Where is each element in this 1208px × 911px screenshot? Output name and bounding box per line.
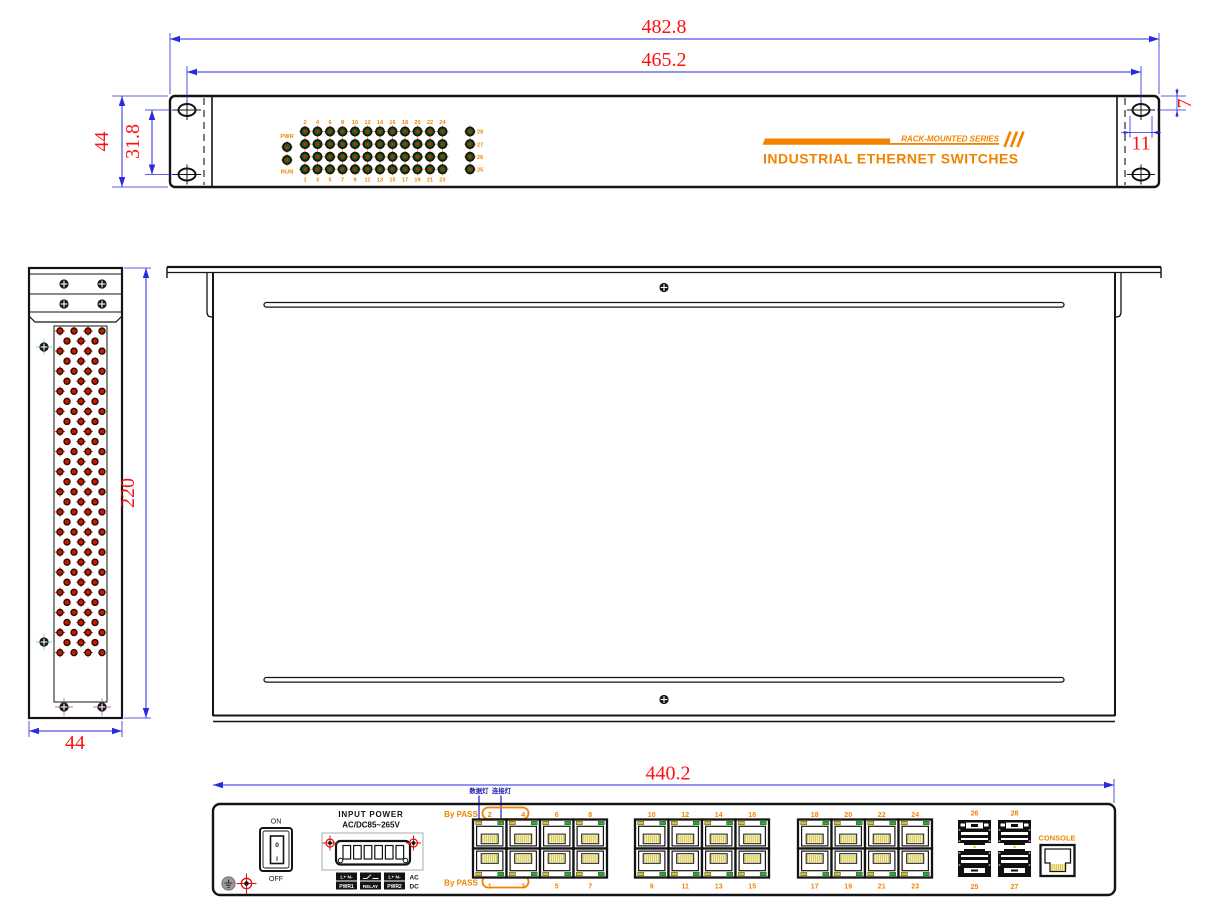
link-led-callout: 连接灯 — [492, 786, 512, 795]
vent-hole — [71, 569, 77, 575]
port-led-yellow — [801, 872, 807, 875]
input-power-label: INPUT POWER — [338, 810, 403, 819]
led-column-number: 6 — [328, 120, 331, 126]
led-column-number: 11 — [365, 178, 371, 184]
cover-screw — [659, 695, 668, 704]
port-led-yellow — [868, 872, 874, 875]
vent-hole — [64, 519, 70, 525]
front-led-panel: PWR RUN 21436587109121114131615181720192… — [280, 120, 483, 184]
input-voltage-label: AC/DC85~265V — [342, 821, 400, 830]
brand-slashes-icon — [1005, 132, 1024, 148]
port-led-yellow — [638, 872, 644, 875]
led-column-number: 7 — [341, 178, 344, 184]
sfp-port[interactable] — [998, 820, 1031, 877]
led-indicator — [437, 138, 449, 150]
terminal-slot — [375, 846, 383, 860]
led-indicator — [464, 151, 476, 163]
led-column-number: 16 — [389, 120, 395, 126]
vent-hole — [92, 579, 98, 585]
power-connector[interactable] — [336, 841, 410, 865]
rj45-port[interactable] — [798, 849, 832, 878]
port-led-green — [760, 872, 766, 875]
rj45-port[interactable] — [736, 820, 770, 849]
vent-hole — [92, 338, 98, 344]
vent-hole — [76, 477, 86, 487]
vent-hole — [99, 529, 105, 535]
vent-hole — [71, 630, 77, 636]
connector-hole — [338, 858, 343, 863]
console-label: CONSOLE — [1038, 834, 1075, 843]
port-led-green — [856, 872, 862, 875]
port-number: 8 — [588, 812, 592, 819]
port-number: 3 — [521, 884, 525, 891]
vent-hole — [64, 459, 70, 465]
sfp-port[interactable] — [958, 820, 991, 877]
vent-hole — [76, 457, 86, 467]
port-number: 10 — [648, 812, 656, 819]
vent-hole — [99, 368, 105, 374]
led-column-number: 22 — [427, 120, 433, 126]
vent-hole — [71, 368, 77, 374]
vent-hole — [64, 378, 70, 384]
cover-screw — [659, 283, 668, 292]
port-led-yellow — [509, 872, 515, 875]
pwr1-pins-label: L+ N- — [340, 875, 353, 881]
led-column-number: 10 — [352, 120, 358, 126]
pwr2-label: PWR2 — [387, 884, 402, 890]
switch-off-label: OFF — [269, 874, 284, 883]
top-vent-slot — [264, 303, 1064, 308]
led-indicator — [281, 154, 293, 166]
dim-width-holes: 465.2 — [642, 49, 687, 71]
vent-hole — [92, 559, 98, 565]
vent-hole — [99, 449, 105, 455]
port-number: 20 — [844, 812, 852, 819]
vent-hole — [92, 519, 98, 525]
led-indicator — [362, 138, 374, 150]
port-led-green — [856, 821, 862, 824]
port-led-green — [660, 872, 666, 875]
port-led-yellow — [671, 872, 677, 875]
rj45-port[interactable] — [473, 820, 507, 849]
rj45-port[interactable] — [635, 849, 669, 878]
vent-hole — [55, 447, 65, 457]
led-indicator — [387, 151, 399, 163]
vent-hole — [83, 567, 93, 577]
led-column-number: 15 — [389, 178, 395, 184]
port-led-yellow — [543, 821, 549, 824]
vent-hole — [76, 517, 86, 527]
terminal-legend: L+ N- L+ N- PWR1 RELAY PWR2 AC DC — [336, 873, 419, 891]
vent-hole — [83, 648, 93, 658]
top-view — [167, 267, 1161, 722]
led-indicator — [412, 126, 424, 138]
port-led-yellow — [834, 821, 840, 824]
vent-hole — [71, 549, 77, 555]
port-led-green — [727, 821, 733, 824]
vent-hole — [55, 346, 65, 356]
led-indicator — [374, 151, 386, 163]
port-number: 23 — [911, 884, 919, 891]
vent-hole — [71, 449, 77, 455]
vent-hole — [83, 487, 93, 497]
bypass-label-top: By PASS — [444, 810, 478, 819]
vent-hole — [99, 549, 105, 555]
vent-hole — [76, 397, 86, 407]
bracket-screw — [97, 279, 106, 288]
vent-hole — [76, 598, 86, 608]
led-indicator — [399, 163, 411, 175]
vent-hole — [55, 387, 65, 397]
rj45-port[interactable] — [507, 820, 541, 849]
led-indicator — [437, 151, 449, 163]
led-indicator — [424, 126, 436, 138]
led-indicator — [349, 151, 361, 163]
port-led-green — [890, 872, 896, 875]
vent-hole — [55, 648, 65, 658]
port-number: 17 — [811, 884, 819, 891]
ground-screw-target — [237, 874, 257, 894]
vent-hole — [71, 388, 77, 394]
series-label: RACK-MOUNTED SERIES — [901, 135, 999, 144]
vent-hole — [55, 366, 65, 376]
vent-hole — [76, 336, 86, 346]
led-indicator — [312, 126, 324, 138]
port-number: 4 — [521, 812, 525, 819]
bottom-screw — [97, 702, 106, 711]
rocker-zero-mark: 0 — [275, 842, 279, 849]
port-number: 19 — [844, 884, 852, 891]
port-number: 11 — [681, 884, 689, 891]
rj45-port[interactable] — [798, 820, 832, 849]
vent-hole — [71, 589, 77, 595]
rj45-port[interactable] — [899, 849, 933, 878]
vent-hole — [71, 328, 77, 334]
led-column-number: 2 — [303, 120, 306, 126]
led-group-label: 25 — [477, 168, 483, 174]
vent-hole — [83, 427, 93, 437]
bracket-screw — [59, 279, 68, 288]
led-column-number: 18 — [402, 120, 408, 126]
port-led-green — [890, 821, 896, 824]
run-led-label: RUN — [281, 170, 294, 176]
vent-hole — [92, 599, 98, 605]
power-switch: ON 0 I OFF — [260, 817, 292, 884]
led-indicator — [412, 151, 424, 163]
led-indicator — [312, 138, 324, 150]
led-indicator — [349, 138, 361, 150]
led-column-number: 12 — [364, 120, 370, 126]
rj45-port[interactable] — [669, 849, 703, 878]
connector-screw-mark — [406, 836, 421, 851]
vent-hole — [71, 429, 77, 435]
port-number: 15 — [748, 884, 756, 891]
led-column-number: 5 — [328, 178, 331, 184]
vent-hole — [76, 417, 86, 427]
port-led-yellow — [509, 821, 515, 824]
bottom-vent-slot — [264, 678, 1064, 683]
led-group-label: 27 — [477, 142, 483, 148]
led-indicator — [399, 138, 411, 150]
vent-hole — [76, 437, 86, 447]
port-led-green — [598, 872, 604, 875]
pwr1-label: PWR1 — [339, 884, 354, 890]
vent-hole — [64, 640, 70, 646]
led-indicator — [312, 151, 324, 163]
led-indicator — [299, 151, 311, 163]
led-indicator — [281, 141, 293, 153]
vent-hole — [92, 439, 98, 445]
vent-hole — [99, 388, 105, 394]
vent-hole — [99, 429, 105, 435]
mounting-hole — [1127, 165, 1155, 185]
dim-rear-width: 440.2 — [646, 763, 691, 785]
vent-hole — [55, 507, 65, 517]
vent-hole — [55, 487, 65, 497]
console-port[interactable]: CONSOLE — [1038, 834, 1075, 877]
led-column-number: 9 — [353, 178, 356, 184]
vent-hole — [83, 527, 93, 537]
ac-label: AC — [410, 874, 420, 881]
led-indicator — [312, 163, 324, 175]
vent-hole — [64, 398, 70, 404]
vent-hole — [92, 418, 98, 424]
rj45-port[interactable] — [702, 849, 736, 878]
brand-bar — [763, 139, 891, 145]
vent-hole — [76, 618, 86, 628]
vent-hole — [83, 407, 93, 417]
vent-hole — [71, 609, 77, 615]
terminal-slot — [396, 846, 404, 860]
led-indicator — [362, 151, 374, 163]
vent-hole — [92, 479, 98, 485]
port-led-green — [693, 872, 699, 875]
rj45-port[interactable] — [540, 820, 574, 849]
port-led-green — [727, 872, 733, 875]
vent-hole — [92, 459, 98, 465]
port-number: 16 — [748, 812, 756, 819]
port-number: 25 — [971, 884, 979, 891]
rj45-port[interactable] — [540, 849, 574, 878]
port-led-yellow — [801, 821, 807, 824]
led-indicator — [299, 163, 311, 175]
relay-label: RELAY — [363, 884, 378, 889]
bypass-label-bottom: By PASS — [444, 879, 478, 888]
port-number: 2 — [488, 812, 492, 819]
led-column-number: 13 — [377, 178, 383, 184]
vent-hole — [64, 338, 70, 344]
led-indicator — [464, 126, 476, 138]
port-number: 18 — [811, 812, 819, 819]
port-led-green — [760, 821, 766, 824]
vent-hole — [64, 539, 70, 545]
front-view: PWR RUN 21436587109121114131615181720192… — [91, 16, 1196, 187]
vent-hole — [92, 358, 98, 364]
rj45-port[interactable] — [574, 849, 608, 878]
vent-hole — [55, 467, 65, 477]
terminal-slot — [385, 846, 393, 860]
vent-hole — [76, 537, 86, 547]
led-indicator — [387, 163, 399, 175]
led-column-number: 20 — [414, 120, 420, 126]
right-ear-hook — [1116, 273, 1121, 318]
vent-hole — [99, 569, 105, 575]
rj45-port[interactable] — [574, 820, 608, 849]
dim-side-width: 44 — [65, 732, 85, 754]
led-column-number: 17 — [402, 178, 408, 184]
vent-hole — [99, 589, 105, 595]
led-indicator — [349, 163, 361, 175]
rj45-port[interactable] — [832, 820, 866, 849]
led-indicator — [324, 138, 336, 150]
vent-hole — [83, 507, 93, 517]
dim-height: 44 — [91, 132, 113, 152]
vent-hole — [55, 608, 65, 618]
vent-hole — [64, 599, 70, 605]
vent-hole — [99, 609, 105, 615]
led-indicator — [349, 126, 361, 138]
port-number: 1 — [488, 884, 492, 891]
led-indicator — [387, 126, 399, 138]
vent-hole — [83, 547, 93, 557]
port-led-green — [498, 821, 504, 824]
dim-hole-offset-side: 11 — [1131, 133, 1150, 155]
led-indicator — [464, 138, 476, 150]
rj45-port[interactable] — [635, 820, 669, 849]
vent-hole — [64, 479, 70, 485]
rj45-port[interactable] — [702, 820, 736, 849]
vent-hole — [92, 619, 98, 625]
rocker-one-mark: I — [276, 856, 278, 863]
vent-hole — [83, 366, 93, 376]
port-led-yellow — [738, 872, 744, 875]
port-led-green — [531, 821, 537, 824]
vent-hole — [55, 527, 65, 537]
led-indicator — [337, 151, 349, 163]
vent-hole — [71, 489, 77, 495]
led-indicator — [424, 138, 436, 150]
port-led-green — [660, 821, 666, 824]
port-number: 6 — [555, 812, 559, 819]
screw-centerlines-cyan — [36, 339, 52, 650]
vent-hole — [64, 358, 70, 364]
port-number: 13 — [715, 884, 723, 891]
switch-on-label: ON — [271, 817, 282, 826]
vent-hole — [64, 619, 70, 625]
port-led-green — [823, 821, 829, 824]
bracket-bottom-edge — [29, 316, 122, 322]
port-number: 22 — [878, 812, 886, 819]
mounting-hole — [173, 165, 201, 185]
vent-hole — [71, 509, 77, 515]
pwr2-pins-label: L+ N- — [388, 875, 401, 881]
led-indicator — [464, 163, 476, 175]
vent-hole — [71, 408, 77, 414]
led-indicator — [437, 126, 449, 138]
port-led-yellow — [705, 872, 711, 875]
port-led-yellow — [901, 821, 907, 824]
rj45-port[interactable] — [507, 849, 541, 878]
vent-hole — [83, 588, 93, 598]
led-group-label: 26 — [477, 155, 483, 161]
port-led-yellow — [543, 872, 549, 875]
vent-hole — [92, 499, 98, 505]
port-led-yellow — [705, 821, 711, 824]
vent-hole — [99, 408, 105, 414]
vent-hole — [76, 557, 86, 567]
terminal-slot — [364, 846, 372, 860]
rear-port-area: 2468135710121416911131518202224171921232… — [473, 811, 1031, 892]
rj45-port[interactable] — [736, 849, 770, 878]
vent-hole — [64, 439, 70, 445]
led-column-number: 3 — [316, 178, 319, 184]
rj45-port[interactable] — [865, 849, 899, 878]
vent-hole — [71, 650, 77, 656]
dim-depth: 220 — [117, 478, 139, 508]
port-led-green — [598, 821, 604, 824]
port-led-green — [923, 872, 929, 875]
led-indicator — [299, 138, 311, 150]
vent-hole — [55, 547, 65, 557]
drawing-page: PWR RUN 21436587109121114131615181720192… — [0, 0, 1208, 911]
port-led-yellow — [638, 821, 644, 824]
vent-hole — [99, 509, 105, 515]
rj45-port[interactable] — [473, 849, 507, 878]
vent-hole — [99, 348, 105, 354]
port-led-green — [923, 821, 929, 824]
vent-hole — [83, 447, 93, 457]
vent-hole — [55, 567, 65, 577]
rj45-port[interactable] — [899, 820, 933, 849]
port-led-green — [565, 872, 571, 875]
port-led-yellow — [901, 872, 907, 875]
vent-hole — [76, 577, 86, 587]
port-led-green — [823, 872, 829, 875]
port-led-yellow — [476, 821, 482, 824]
vent-hole — [76, 497, 86, 507]
vent-hole — [99, 469, 105, 475]
vent-hole — [83, 628, 93, 638]
port-number: 9 — [650, 884, 654, 891]
side-wall-screw — [39, 342, 48, 351]
led-group-label: 28 — [477, 130, 483, 136]
rj45-port[interactable] — [669, 820, 703, 849]
led-column-number: 19 — [414, 178, 420, 184]
console-pins — [1051, 864, 1064, 871]
front-branding: RACK-MOUNTED SERIES INDUSTRIAL ETHERNET … — [763, 132, 1024, 167]
vent-hole — [64, 499, 70, 505]
rj45-port[interactable] — [832, 849, 866, 878]
port-number: 14 — [715, 812, 723, 819]
side-view: 220 44 — [29, 268, 151, 754]
rj45-port[interactable] — [865, 820, 899, 849]
vent-hole — [83, 608, 93, 618]
led-indicator — [374, 163, 386, 175]
led-indicator — [337, 138, 349, 150]
led-column-number: 14 — [377, 120, 384, 126]
vent-hole — [99, 328, 105, 334]
led-column-number: 21 — [427, 178, 433, 184]
data-led-callout: 数据灯 — [469, 786, 489, 795]
pwr-led-label: PWR — [280, 134, 294, 140]
led-indicator — [324, 151, 336, 163]
led-indicator — [337, 126, 349, 138]
led-indicator — [362, 126, 374, 138]
led-indicator — [374, 126, 386, 138]
vent-hole — [92, 640, 98, 646]
vent-hole — [99, 650, 105, 656]
bracket-screw — [97, 299, 106, 308]
